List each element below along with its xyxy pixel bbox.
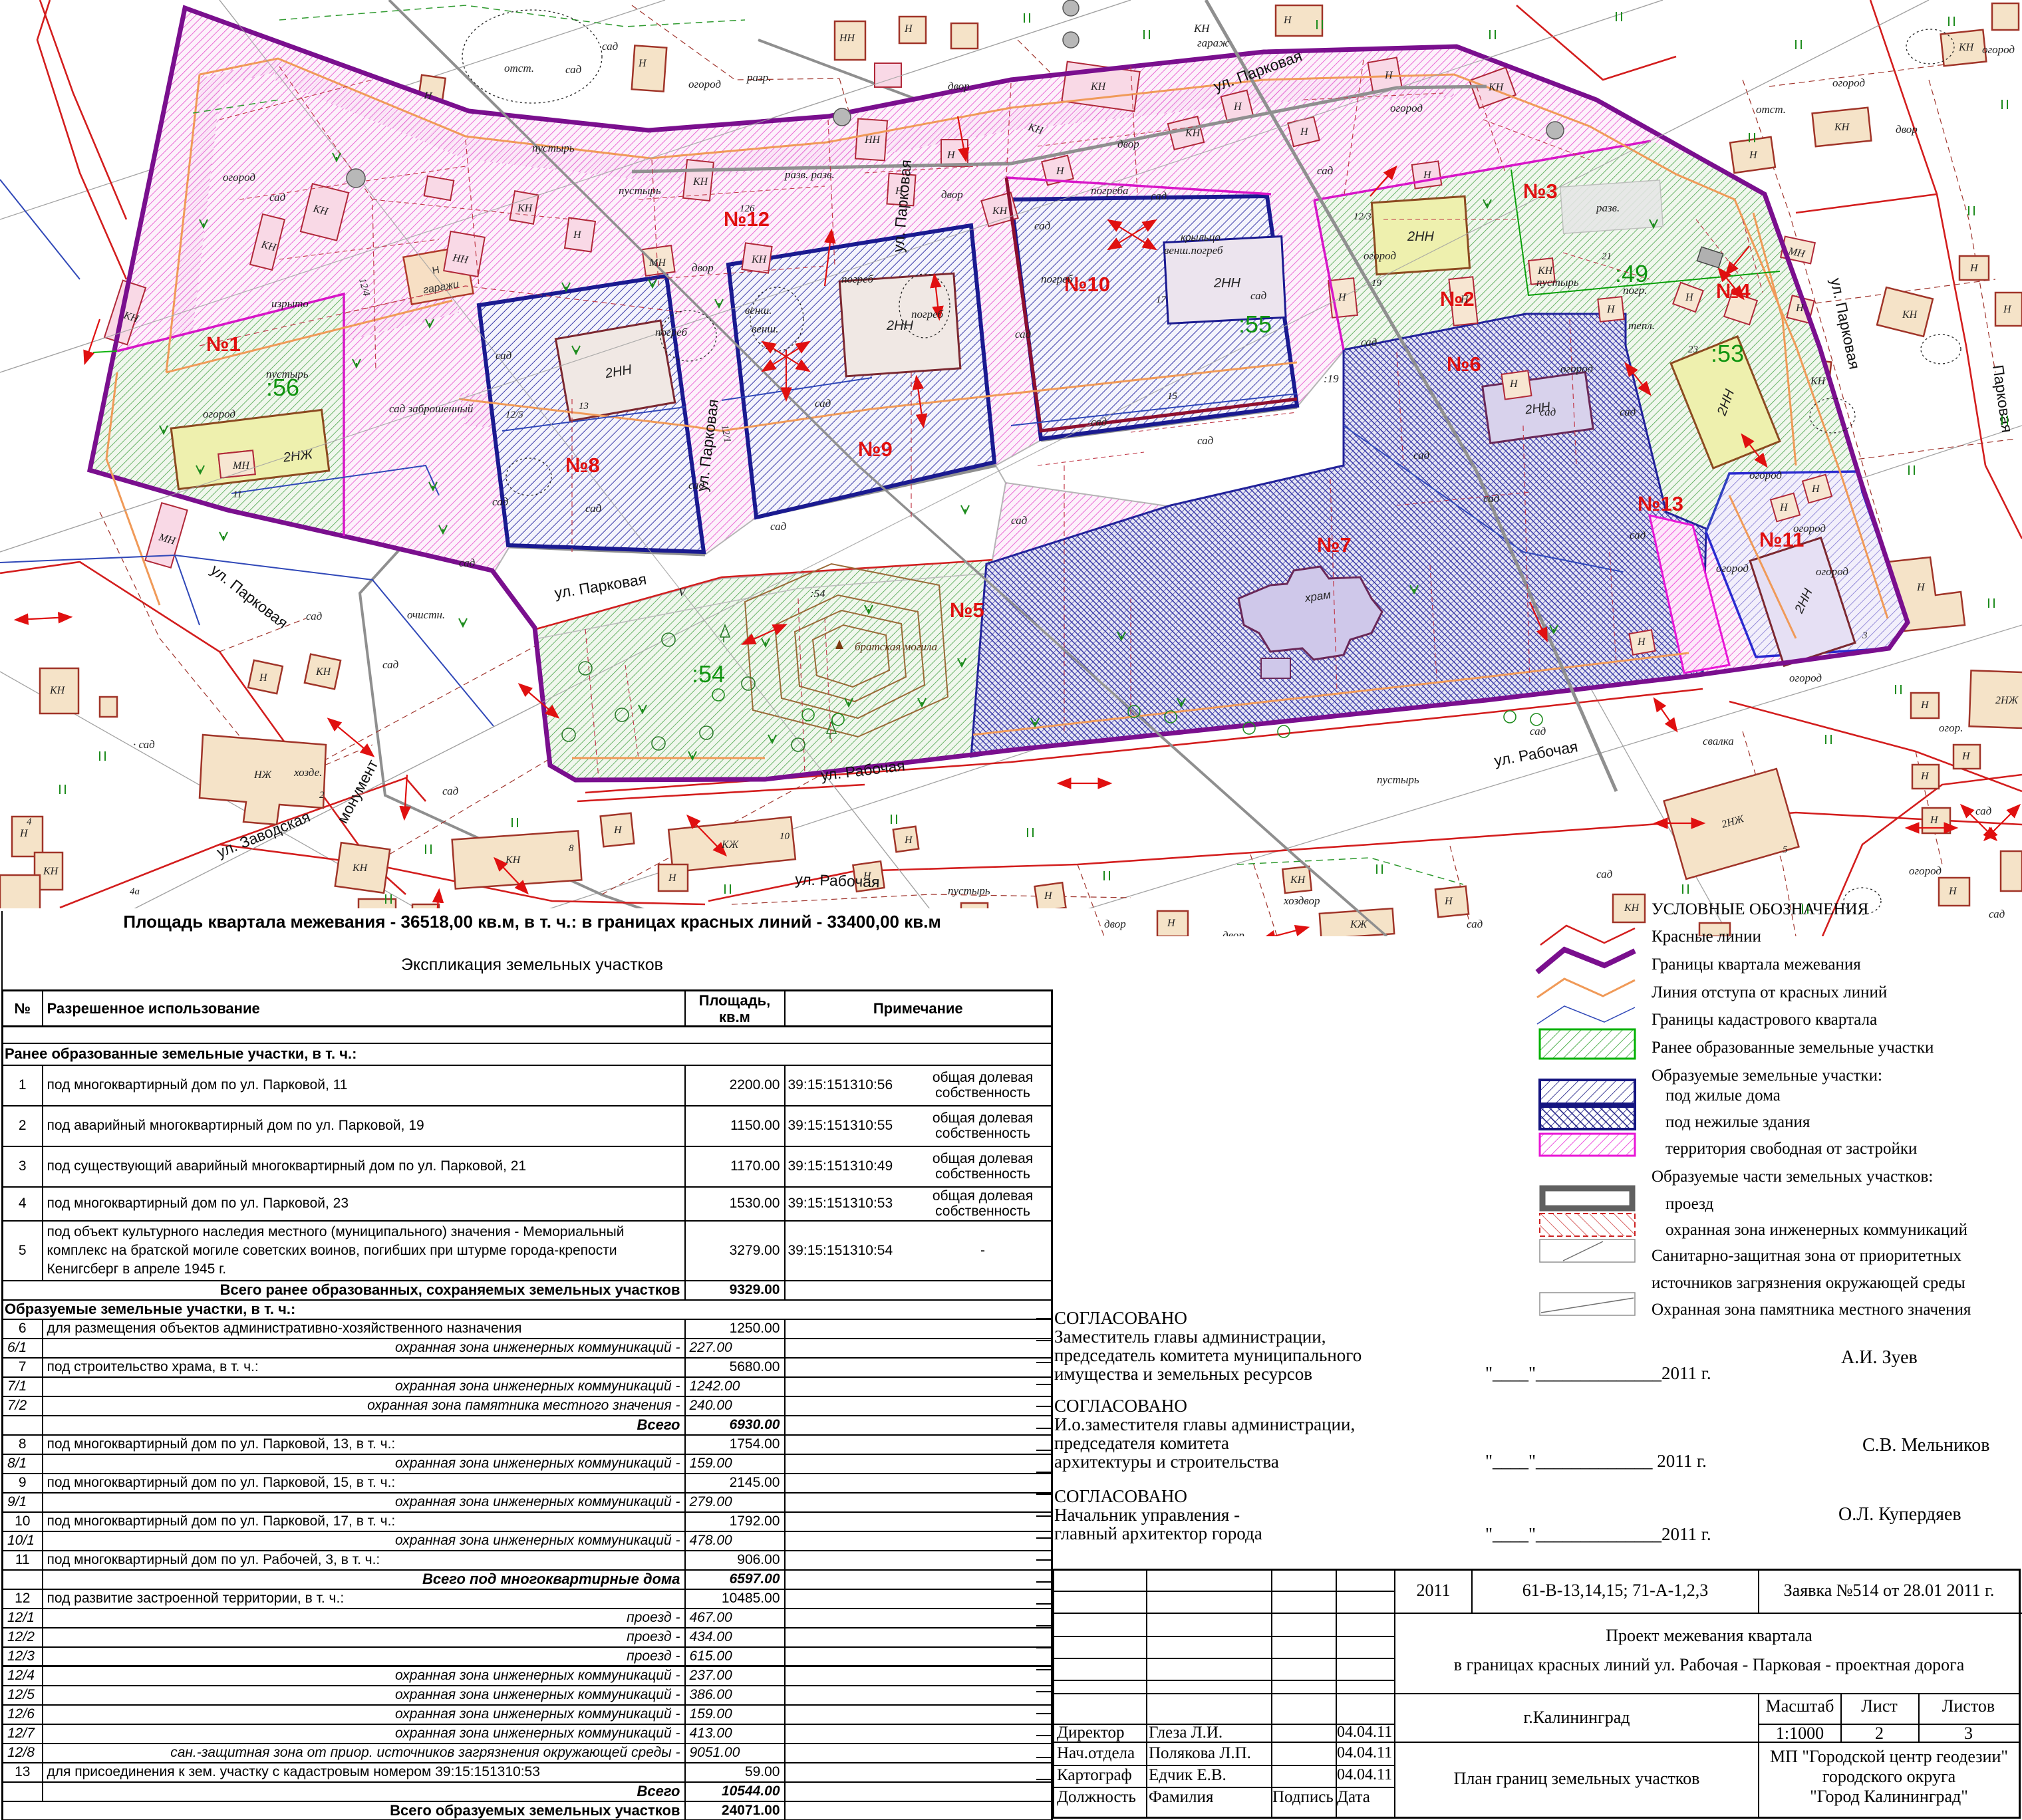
svg-text:12/3: 12/3 <box>1354 211 1372 222</box>
svg-text:КН: КН <box>992 205 1008 217</box>
svg-text:НН: НН <box>864 134 881 146</box>
svg-text:№5: №5 <box>950 598 984 622</box>
svg-text:КН: КН <box>1902 309 1918 321</box>
svg-text:· сад: · сад <box>133 738 155 751</box>
svg-text:сад: сад <box>1361 336 1377 348</box>
svg-text:КЖ: КЖ <box>721 839 740 850</box>
svg-text:Н: Н <box>1811 483 1820 495</box>
svg-text:отст.: отст. <box>1756 103 1786 116</box>
svg-text:КН: КН <box>1488 82 1505 93</box>
svg-text:Н: Н <box>1920 771 1930 782</box>
svg-text:Н: Н <box>1969 263 1979 274</box>
svg-text:КН: КН <box>49 685 66 696</box>
svg-text:Красные линии: Красные линии <box>1652 928 1761 946</box>
svg-text:сад: сад <box>306 610 323 622</box>
svg-text:сад: сад <box>1596 868 1613 880</box>
svg-text:огород: огород <box>1793 522 1826 535</box>
svg-text:Н: Н <box>1460 294 1469 305</box>
svg-text:4: 4 <box>27 817 32 827</box>
svg-text:венш.погреб: венш.погреб <box>1164 244 1223 257</box>
svg-text:КН: КН <box>1193 22 1211 35</box>
svg-text:огород: огород <box>1909 864 1942 877</box>
svg-text:огород: огород <box>1982 43 2015 56</box>
svg-text:двор: двор <box>692 261 714 274</box>
svg-text:Н: Н <box>1338 292 1347 303</box>
svg-text:под жилые дома: под жилые дома <box>1665 1087 1781 1105</box>
svg-text:Н: Н <box>904 23 913 35</box>
svg-text:сад: сад <box>459 557 476 569</box>
svg-text:Н: Н <box>1779 502 1789 513</box>
svg-text:сад: сад <box>1620 406 1636 418</box>
svg-text:разв.: разв. <box>1596 201 1620 214</box>
svg-text::54: :54 <box>810 587 825 600</box>
svg-text:Н: Н <box>1606 304 1616 315</box>
svg-text:КН: КН <box>1090 81 1107 92</box>
svg-text:сад: сад <box>602 40 619 53</box>
svg-text:№7: №7 <box>1317 533 1352 557</box>
svg-text:источников загрязнения окружаю: источников загрязнения окружающей среды <box>1652 1274 1965 1292</box>
svg-text:КН: КН <box>43 866 59 877</box>
svg-text:пустырь: пустырь <box>619 184 661 197</box>
svg-text:разр.: разр. <box>746 71 771 84</box>
svg-text:Н: Н <box>1283 15 1292 26</box>
svg-text:огород: огород <box>1364 249 1396 262</box>
svg-text:хозде.: хозде. <box>293 766 322 779</box>
svg-text:Линия отступа от красных линий: Линия отступа от красных линий <box>1652 983 1887 1001</box>
svg-text:Н: Н <box>19 828 29 839</box>
svg-text:сад: сад <box>442 785 459 797</box>
svg-text:5: 5 <box>1783 845 1788 855</box>
svg-text:сад: сад <box>1630 529 1646 541</box>
svg-text:очистн.: очистн. <box>407 608 445 621</box>
svg-text:2НН: 2НН <box>1407 229 1435 244</box>
svg-text:126: 126 <box>740 203 755 214</box>
svg-text:Н: Н <box>1233 101 1242 112</box>
svg-text:Н: Н <box>1920 700 1930 711</box>
svg-text:Н: Н <box>1423 170 1432 181</box>
svg-text:НЖ: НЖ <box>253 769 273 781</box>
svg-text:сад заброшенный: сад заброшенный <box>389 402 474 415</box>
svg-text:двор: двор <box>1104 918 1126 930</box>
svg-text:КЖ: КЖ <box>1350 919 1368 930</box>
svg-text:сад: сад <box>1151 190 1167 202</box>
svg-text:Н: Н <box>1056 166 1065 177</box>
svg-text:Н: Н <box>1749 150 1758 161</box>
svg-text:огород: огород <box>223 171 255 184</box>
svg-text:охранная зона инженерных комму: охранная зона инженерных коммуникаций <box>1665 1221 1967 1239</box>
svg-text:Санитарно-защитная зона от при: Санитарно-защитная зона от приоритетных <box>1652 1247 1961 1265</box>
svg-text:венш.: венш. <box>745 304 772 317</box>
svg-text:Н: Н <box>1930 815 1939 826</box>
svg-text:погреба: погреба <box>1091 184 1129 197</box>
svg-text:огород: огород <box>203 408 235 420</box>
svg-text:сад: сад <box>382 658 399 671</box>
svg-text:огород: огород <box>1390 102 1423 114</box>
svg-text:Н: Н <box>668 872 677 884</box>
svg-text:свалка: свалка <box>1703 735 1734 747</box>
svg-text:двор: двор <box>1896 123 1918 136</box>
svg-text:погреб: погреб <box>841 273 873 285</box>
svg-text::53: :53 <box>1711 340 1744 367</box>
svg-text:КН: КН <box>1537 265 1554 277</box>
svg-text:Границы кадастрового квартала: Границы кадастрового квартала <box>1652 1011 1877 1029</box>
svg-text:Н: Н <box>1961 751 1971 762</box>
svg-text:№8: №8 <box>565 454 600 477</box>
svg-text:сад: сад <box>1250 289 1267 302</box>
svg-text::54: :54 <box>692 660 725 688</box>
svg-text:МН: МН <box>649 257 666 269</box>
svg-text:№2: №2 <box>1440 287 1475 311</box>
svg-text:погр.: погр. <box>1623 284 1647 297</box>
svg-text:Н: Н <box>573 229 582 241</box>
svg-text:пустырь: пустырь <box>266 368 309 380</box>
svg-text::55: :55 <box>1238 311 1272 338</box>
svg-text:отст.: отст. <box>504 62 534 74</box>
svg-text:сад: сад <box>1483 492 1500 505</box>
svg-text:разв. разв.: разв. разв. <box>784 168 835 181</box>
svg-text:огород: огород <box>1749 469 1782 481</box>
svg-text:гараж: гараж <box>1197 37 1229 49</box>
svg-text:Ранее образованные земельные у: Ранее образованные земельные участки <box>1652 1039 1934 1057</box>
svg-text:Н: Н <box>1685 292 1694 303</box>
svg-text:Н: Н <box>1300 126 1309 138</box>
svg-text:КН: КН <box>692 176 709 188</box>
svg-text:огород: огород <box>1832 76 1865 89</box>
svg-text:КН: КН <box>1958 42 1975 53</box>
svg-text:21: 21 <box>1602 251 1612 262</box>
svg-text:2НН: 2НН <box>1213 276 1241 291</box>
svg-text:11: 11 <box>233 489 242 500</box>
svg-text:№4: №4 <box>1716 279 1751 303</box>
svg-text:огород: огород <box>1789 672 1822 684</box>
svg-text:КН: КН <box>1290 874 1306 886</box>
svg-text:10: 10 <box>780 831 790 842</box>
svg-text:сад: сад <box>492 495 509 508</box>
svg-text:сад: сад <box>815 397 831 410</box>
svg-text:погреб: погреб <box>1041 273 1073 285</box>
svg-text:4а: 4а <box>130 886 140 897</box>
svg-text:Н: Н <box>904 835 913 846</box>
svg-text:13: 13 <box>579 401 589 412</box>
svg-text:сад: сад <box>770 520 787 533</box>
svg-text:8: 8 <box>569 843 574 854</box>
svg-text:сад: сад <box>1091 416 1107 428</box>
svg-text:КН: КН <box>751 254 768 265</box>
svg-text:сад: сад <box>1540 406 1556 418</box>
svg-text:сад: сад <box>1530 725 1546 737</box>
svg-text:2: 2 <box>319 790 325 801</box>
svg-text:двор: двор <box>1117 138 1139 150</box>
svg-text:хоздвор: хоздвор <box>1283 894 1320 907</box>
svg-text::19: :19 <box>1324 372 1339 385</box>
svg-text:№13: №13 <box>1638 492 1683 515</box>
svg-text:огород: огород <box>1560 362 1593 375</box>
svg-text:Охранная зона памятника местно: Охранная зона памятника местного значени… <box>1652 1301 1971 1319</box>
svg-text:17: 17 <box>1156 295 1167 305</box>
svg-text:пустырь: пустырь <box>1536 276 1579 289</box>
svg-text:Н: Н <box>863 870 872 882</box>
svg-text:братская могила: братская могила <box>855 640 937 653</box>
svg-text:пустырь: пустырь <box>532 142 575 154</box>
svg-text:Н: Н <box>1795 303 1805 314</box>
svg-text:сад: сад <box>1467 918 1483 930</box>
svg-text:сад: сад <box>496 349 512 362</box>
svg-text:сад: сад <box>1034 219 1051 232</box>
svg-text:Н: Н <box>1167 918 1176 929</box>
svg-text:12/5: 12/5 <box>505 410 523 420</box>
svg-text:№9: №9 <box>858 438 893 461</box>
svg-text:сад: сад <box>1975 805 1992 817</box>
svg-text:сад: сад <box>1413 449 1430 461</box>
svg-text:под нежилые здания: под нежилые здания <box>1665 1113 1810 1131</box>
svg-text:Н: Н <box>1637 636 1646 648</box>
svg-text::49: :49 <box>1615 260 1648 287</box>
svg-text:огород: огород <box>1816 565 1848 578</box>
svg-text:НН: НН <box>839 33 856 44</box>
svg-text:венш.: венш. <box>752 323 778 335</box>
svg-text:19: 19 <box>1372 278 1382 289</box>
svg-text:сад: сад <box>585 502 602 515</box>
svg-text:крыльцо: крыльцо <box>1181 232 1221 243</box>
svg-text:МН: МН <box>232 460 250 471</box>
svg-text:сад: сад <box>565 63 582 76</box>
svg-text:КН: КН <box>1185 128 1201 139</box>
svg-text:Границы квартала межевания: Границы квартала межевания <box>1652 956 1861 974</box>
svg-text:сад: сад <box>1317 164 1334 177</box>
svg-text:3: 3 <box>1862 630 1868 641</box>
svg-text:№1: №1 <box>206 332 241 356</box>
svg-text:УСЛОВНЫЕ ОБОЗНАЧЕНИЯ: УСЛОВНЫЕ ОБОЗНАЧЕНИЯ <box>1652 900 1868 918</box>
svg-text:15: 15 <box>1167 391 1178 402</box>
svg-text:2НЖ: 2НЖ <box>1995 695 2019 706</box>
svg-text:Н: Н <box>1044 890 1053 902</box>
svg-text:огород: огород <box>1716 562 1749 575</box>
svg-text:Н: Н <box>1384 70 1393 81</box>
svg-text:пустырь: пустырь <box>1377 773 1419 786</box>
svg-text:проезд: проезд <box>1665 1195 1714 1213</box>
svg-text:№6: №6 <box>1447 352 1481 376</box>
svg-text:двор: двор <box>941 188 963 201</box>
svg-text:сад: сад <box>1011 514 1028 527</box>
svg-text:погреб: погреб <box>655 326 687 338</box>
svg-text:№3: №3 <box>1523 180 1558 203</box>
svg-text:КН: КН <box>352 862 368 874</box>
svg-text:Н: Н <box>259 672 268 684</box>
svg-text:23: 23 <box>1688 344 1698 355</box>
svg-text:пустырь: пустырь <box>948 884 990 897</box>
svg-text:Н: Н <box>1444 896 1453 907</box>
svg-text:Н: Н <box>895 186 904 197</box>
svg-text:КН: КН <box>1810 376 1826 387</box>
svg-text:КН: КН <box>505 854 521 866</box>
svg-text:КН: КН <box>315 666 332 678</box>
svg-text:Н: Н <box>946 150 956 161</box>
svg-text:огор.: огор. <box>1939 721 1963 734</box>
svg-text:изрыто: изрыто <box>271 297 309 310</box>
svg-text:сад: сад <box>688 479 705 491</box>
svg-text:двор: двор <box>948 80 970 92</box>
svg-text:тепл.: тепл. <box>1628 319 1655 332</box>
svg-text:сад: сад <box>1015 328 1032 340</box>
svg-text:погреб: погреб <box>911 308 943 321</box>
svg-text:Н: Н <box>1509 378 1518 390</box>
svg-text:Н: Н <box>638 58 647 69</box>
svg-text:КН: КН <box>517 203 533 214</box>
svg-text:огород: огород <box>688 78 721 90</box>
svg-text:территория свободная от застро: территория свободная от застройки <box>1665 1140 1917 1158</box>
svg-text:КН: КН <box>1834 122 1850 133</box>
svg-text:Образуемые земельные участки:: Образуемые земельные участки: <box>1652 1067 1882 1085</box>
svg-text:Н: Н <box>613 825 623 836</box>
svg-text:сад: сад <box>1197 434 1214 447</box>
svg-text:Н: Н <box>1916 582 1926 593</box>
svg-text:двор: двор <box>1223 929 1244 936</box>
svg-text:Образуемые части земельных уча: Образуемые части земельных участков: <box>1652 1168 1933 1186</box>
svg-text:Н: Н <box>2003 304 2012 315</box>
